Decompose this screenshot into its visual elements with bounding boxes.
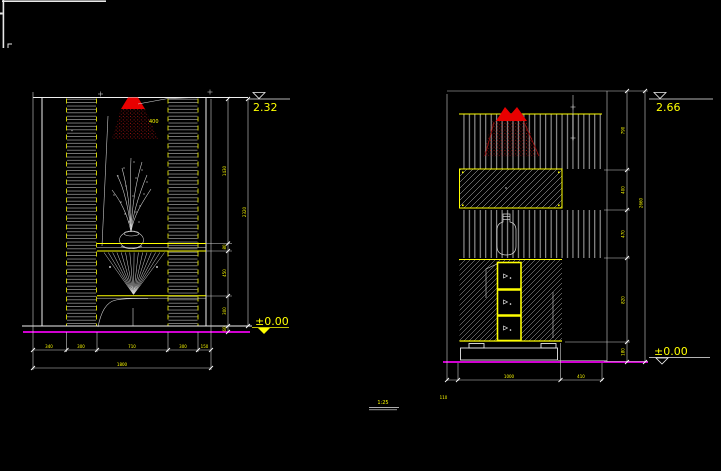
left-elevation-top-value: 2.32 [253,101,278,114]
right-hatched-panel [460,169,563,208]
drawer-stack [498,263,522,341]
cad-canvas[interactable]: 400 [0,0,721,471]
right-vdim-3: 470 [621,230,626,238]
left-hdim-5: 150 [201,344,209,349]
left-vdim-3: 450 [222,269,227,277]
left-hdim-3: 710 [128,344,136,349]
right-hdim-2: 410 [577,374,585,379]
left-vdim-5: 60 [222,326,227,332]
right-elevation-top-value: 2.66 [656,101,681,114]
right-vdim-1: 790 [621,126,626,134]
left-vdim-2: 80 [222,244,227,250]
canvas-background [0,0,721,471]
left-vdim-1: 1430 [222,165,227,176]
left-hdim-total: 1800 [117,362,128,367]
left-vdim-4: 300 [222,307,227,315]
right-cabinet [460,260,563,341]
left-hdim-1: 340 [45,344,53,349]
right-vdim-4: 820 [621,296,626,304]
right-vdim-total: 2660 [639,197,644,208]
left-elevation-floor-value: ±0.00 [255,315,289,328]
left-vdim-total: 2320 [242,206,247,217]
right-vdim-2: 400 [621,186,626,194]
left-hdim-2: 300 [77,344,85,349]
left-hdim-4: 300 [179,344,187,349]
right-vdim-5: 180 [621,348,626,356]
left-light-dim-label: 400 [149,119,159,125]
cad-viewport[interactable]: 400 [0,0,721,471]
right-elevation-floor-value: ±0.00 [654,345,688,358]
right-hdim-1: 1000 [504,374,515,379]
scale-label: 1:25 [377,400,388,406]
right-hdim-offset: 110 [440,395,448,400]
